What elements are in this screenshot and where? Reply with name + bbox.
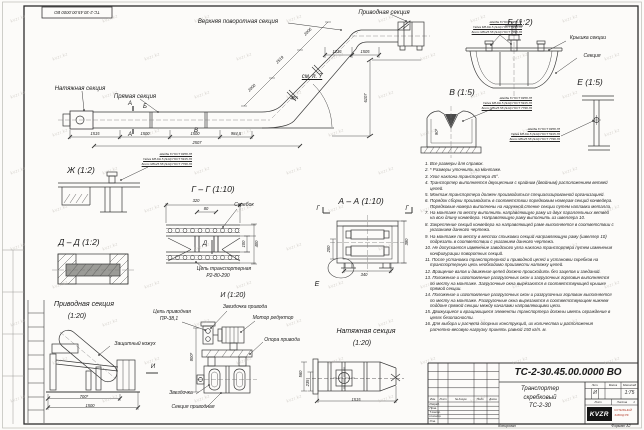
dim-angle-45: 45° xyxy=(290,97,298,102)
dim-400: 400 xyxy=(255,241,259,248)
dim-1500-b: 1500 xyxy=(190,132,199,136)
dim-100: 100 xyxy=(242,241,246,248)
dim-320: 320 xyxy=(193,199,200,203)
mark-a-top: А xyxy=(128,101,132,107)
note-item: 2. * Размеры уточнить на монтаже. xyxy=(425,167,614,172)
label-drive-sprocket: Звездочка привода xyxy=(223,305,267,310)
kvzr-logo: KVZR xyxy=(587,407,613,421)
note-item: 1. Все размеры для справок. xyxy=(425,161,614,166)
label-see-note-7: см. п. 7 xyxy=(302,74,322,80)
dim-340: 340 xyxy=(361,273,368,277)
dim-560: 560 xyxy=(298,371,302,378)
tb-sheet-label: Лист xyxy=(594,401,601,404)
title-tension-section-1: Натяжная секция xyxy=(336,328,395,335)
dim-1216: 1216 xyxy=(332,50,341,54)
tb-col-izm: Изм. xyxy=(430,398,436,401)
label-drive-section-main: Приводная секция xyxy=(358,10,409,16)
mark-e: Е xyxy=(315,281,320,288)
mark-g-right: Г xyxy=(405,206,408,212)
label-drive-chain-1: Цепь приводная xyxy=(153,310,191,315)
label-conveyor-chain-2: Р2-80-290 xyxy=(206,274,229,279)
title-block-doc-number: ТС-2-30.45.00.0000 ВО xyxy=(514,368,621,378)
label-drive-section-name: Секция приводная xyxy=(171,405,214,410)
note-item: 11. После установки транспортерной и при… xyxy=(425,257,614,268)
tb-scale-value: 1:75 xyxy=(625,391,635,396)
tb-row-nkontr: Н.контр. xyxy=(430,415,442,418)
mark-g-left: Г xyxy=(316,206,319,212)
main-side-view xyxy=(58,14,430,148)
label-section: Секция xyxy=(583,54,600,59)
label-tension-section-main: Натяжная секция xyxy=(55,86,106,92)
view-b-detail xyxy=(466,26,577,97)
note-item: 6. Порядок сборки производить в соответс… xyxy=(425,198,614,209)
label-drive-chain-2: ПР-38,1 xyxy=(160,317,178,322)
label-conveyor-chain-1: Цепь транспортерная xyxy=(197,267,251,272)
label-protective-cover: Защитный кожух xyxy=(114,342,155,347)
gost-line-bolt: Болт М8х25.58 (S13) ГОСТ 7798-70 xyxy=(468,137,560,142)
title-tension-section-2: (1:20) xyxy=(353,340,371,347)
dim-800: 800* xyxy=(190,353,194,361)
tb-col-sign: Подп. xyxy=(477,398,484,401)
title-view-e: Е (1:5) xyxy=(577,78,603,87)
gost-callout-v: Шайба 8 ГОСТ 6958-78 Гайка М8-6Н.5 (S13)… xyxy=(440,96,532,110)
label-section-cover: Крышка секции xyxy=(570,36,606,41)
note-item: 8. Закрепление секций конвейера на напра… xyxy=(425,222,614,233)
dim-380: 380 xyxy=(405,239,409,246)
dim-2507: 2507 xyxy=(192,141,201,145)
note-item: 10. Не допускается изменение заводского … xyxy=(425,245,614,256)
dim-1500-drive: 1500 xyxy=(85,404,94,408)
label-top-rotary-section: Верхняя поворотная секция xyxy=(198,19,278,25)
note-item: 15. Движущиеся и вращающиеся элементы тр… xyxy=(425,309,614,320)
technical-notes: 1. Все размеры для справок. 2. * Размеры… xyxy=(425,161,614,333)
title-block-name-2: скребковый xyxy=(524,395,557,401)
gost-line-bolt: Болт М8х25.58 (S13) ГОСТ 7798-70 xyxy=(100,162,192,167)
dim-984-5: 984,5 xyxy=(231,132,241,136)
dim-90: 90* xyxy=(435,129,439,135)
note-item: 16. Для выбора и расчета опорных констру… xyxy=(425,321,614,332)
gost-callout-b: Шайба 8 ГОСТ 6958-78 Гайка М8-6Н.5 (S13)… xyxy=(430,20,522,34)
dim-1515: 1515 xyxy=(90,132,99,136)
dim-1515-tension: 1515 xyxy=(351,398,360,402)
dim-1505: 1505 xyxy=(360,50,369,54)
label-drive-support: Опора привода xyxy=(264,338,300,343)
title-drive-section-1: Приводная секция xyxy=(54,301,114,308)
title-block-name-3: ТС-2-30 xyxy=(529,403,551,409)
tb-lit-value: И xyxy=(593,391,597,396)
dim-700: 700* xyxy=(80,395,88,399)
label-motor-reducer: Мотор редуктор xyxy=(253,316,294,321)
footer-copied: Копировал xyxy=(498,425,515,429)
gost-line-bolt: Болт М8х25.58 (S13) ГОСТ 7798-70 xyxy=(430,30,522,35)
title-view-i: И (1:20) xyxy=(220,292,245,299)
dim-6107: 6107 xyxy=(364,93,368,102)
title-block-name-1: Транспортер xyxy=(521,386,559,392)
note-item: 7. На монтаже по месту выполнить направл… xyxy=(425,210,614,221)
dim-1500-a: 1500 xyxy=(140,132,149,136)
mark-d: Д xyxy=(203,241,207,247)
gost-callout-e: Шайба 8 ГОСТ 6958-78 Гайка М8-6Н.5 (S13)… xyxy=(468,127,560,141)
drawing-sheet: kvzr.kzkvzr.kzkvzr.kzkvzr.kzkvzr.kzkvzr.… xyxy=(0,0,644,430)
dim-235: 235 xyxy=(306,379,310,386)
note-item: 9. На монтаже по месту в местах стыковки… xyxy=(425,234,614,245)
dim-80: 80 xyxy=(204,207,209,211)
title-drive-section-2: (1:20) xyxy=(68,313,86,320)
label-sprocket: Звездочка xyxy=(169,391,193,396)
tb-col-list: Лист xyxy=(439,398,446,401)
mark-i: И xyxy=(151,364,155,370)
tb-col-date: Дата xyxy=(489,398,496,401)
title-view-zh: Ж (1:2) xyxy=(67,166,95,175)
tb-sheets-label: Листов xyxy=(617,401,627,404)
title-view-dd: Д – Д (1:2) xyxy=(58,238,99,247)
footer-format: Формат А2 xyxy=(611,425,630,429)
label-straight-section: Прямая секция xyxy=(114,94,156,100)
note-item: 13. Положение и изготовление разгрузочны… xyxy=(425,275,614,291)
note-item: 4. Транспортер выполняется двухцепным с … xyxy=(425,180,614,191)
title-view-aa: А – А (1:10) xyxy=(338,197,383,206)
top-stamp-doc-number: ТС-2-30.45.00.0000 ВО xyxy=(42,7,112,18)
dim-200: 200 xyxy=(327,246,331,253)
label-scraper: Скребок xyxy=(234,203,254,208)
tb-sheets-value: 1 xyxy=(633,401,635,404)
tb-lit-header: Лит. xyxy=(592,384,599,387)
view-e-detail xyxy=(561,96,614,150)
view-aa-section xyxy=(323,207,412,278)
gost-callout-zh: Шайба 8 ГОСТ 6958-78 Гайка М8-6Н.5 (S13)… xyxy=(100,152,192,166)
note-item: 3. Угол наклона транспортера 45°. xyxy=(425,174,614,179)
logo-subtext-1: КОТЕЛЬНЫЙ xyxy=(615,409,633,412)
tb-col-doc: № докум. xyxy=(455,398,467,401)
tb-scale-header: Масштаб xyxy=(623,384,636,387)
mark-b: Б xyxy=(143,104,147,110)
mark-a-bottom: А xyxy=(128,132,132,138)
view-gg-section xyxy=(164,203,257,268)
note-item: 5. Монтаж транспортера должен производит… xyxy=(425,192,614,197)
note-item: 12. Вращение валов и движение цепей долж… xyxy=(425,269,614,274)
tb-row-utv: Утв. xyxy=(430,420,436,423)
logo-subtext-2: ЗАВОД РФ xyxy=(615,414,629,417)
title-view-gg: Г – Г (1:10) xyxy=(191,185,234,194)
note-item: 14. Положение и изготовление разгрузочны… xyxy=(425,292,614,308)
tb-mass-header: Масса xyxy=(609,384,617,387)
gost-line-bolt: Болт М8х25.58 (S13) ГОСТ 7798-70 xyxy=(440,106,532,111)
